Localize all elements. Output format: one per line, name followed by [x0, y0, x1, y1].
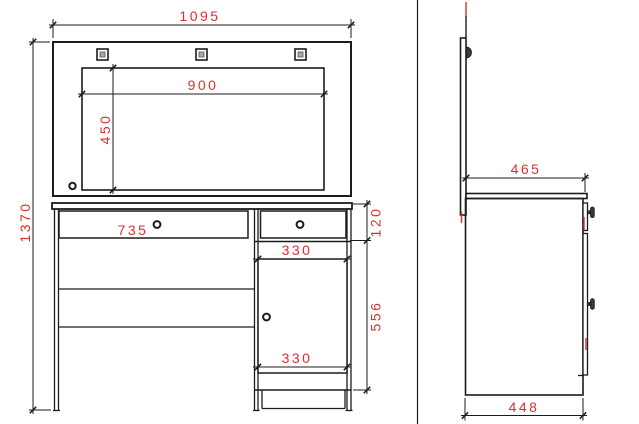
knob-cap [591, 299, 595, 310]
left-drawer-knob [154, 221, 161, 228]
switch-knob [69, 183, 75, 189]
light-fixture-lamp [298, 52, 303, 57]
dim-drawer-height: 120 [350, 200, 384, 244]
dim-label-left-drawer-width: 735 [118, 222, 149, 238]
plinth [262, 390, 345, 409]
dim-pedestal-top-width: 330 [253, 242, 351, 262]
dim-label-pedestal-bottom-width: 330 [282, 350, 313, 366]
front-view: 1095 1370 900 450 735 [17, 8, 384, 414]
cabinet-side-body [466, 199, 584, 396]
dim-label-pedestal-top-width: 330 [282, 242, 313, 258]
dim-mirror-height: 450 [97, 64, 116, 194]
light-fixture [196, 49, 207, 60]
side-view: 465 448 [418, 0, 595, 424]
left-side-panel [53, 209, 60, 411]
dim-label-top-depth: 465 [511, 161, 542, 177]
light-fixture [295, 49, 306, 60]
light-fixture-lamp [100, 52, 105, 57]
drawer-knob-side [588, 207, 595, 218]
dim-label-drawer-height: 120 [368, 207, 384, 238]
cabinet-door-knob [263, 314, 270, 321]
dim-label-mirror-height: 450 [97, 114, 113, 145]
door-front-side [583, 234, 588, 376]
dim-mirror-width: 900 [78, 77, 328, 97]
right-drawer-knob [297, 221, 304, 228]
dim-label-door-height: 556 [368, 301, 384, 332]
knob-stem [588, 303, 591, 306]
dim-overall-width: 1095 [49, 8, 355, 38]
knob-cap [591, 207, 595, 218]
knob-stem [588, 211, 591, 214]
light-fixtures [97, 49, 306, 60]
dim-door-height: 556 [353, 241, 384, 395]
dim-overall-height: 1370 [17, 38, 51, 414]
dim-top-depth: 465 [462, 161, 589, 192]
dim-label-overall-width: 1095 [179, 8, 220, 24]
light-fixture-lamp [199, 52, 204, 57]
mirror-clip [467, 47, 472, 58]
technical-drawing-page: 1095 1370 900 450 735 [0, 0, 639, 424]
dim-label-overall-height: 1370 [17, 201, 33, 242]
desk-top [52, 203, 352, 209]
mirror-side-panel [461, 38, 467, 215]
dim-label-mirror-width: 900 [188, 77, 219, 93]
dim-label-base-depth: 448 [509, 399, 540, 415]
technical-drawing-canvas: 1095 1370 900 450 735 [0, 0, 639, 424]
light-fixture [97, 49, 108, 60]
dim-base-depth: 448 [461, 398, 587, 421]
door-knob-side [588, 299, 595, 310]
